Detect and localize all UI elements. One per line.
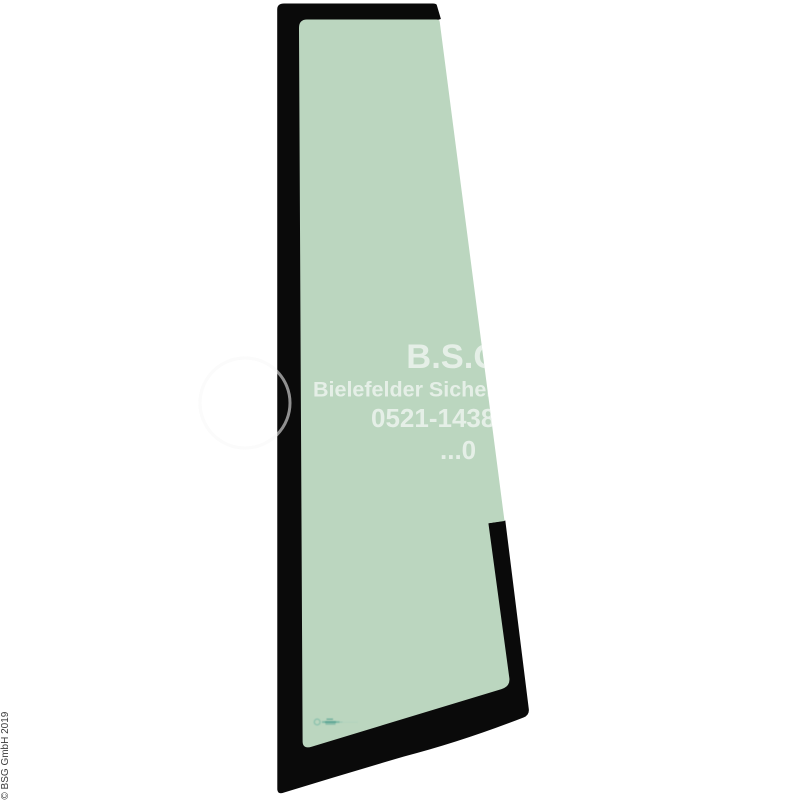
svg-text:...0: ...0	[440, 435, 476, 465]
svg-text:© BSG GmbH 2019: © BSG GmbH 2019	[0, 711, 11, 799]
